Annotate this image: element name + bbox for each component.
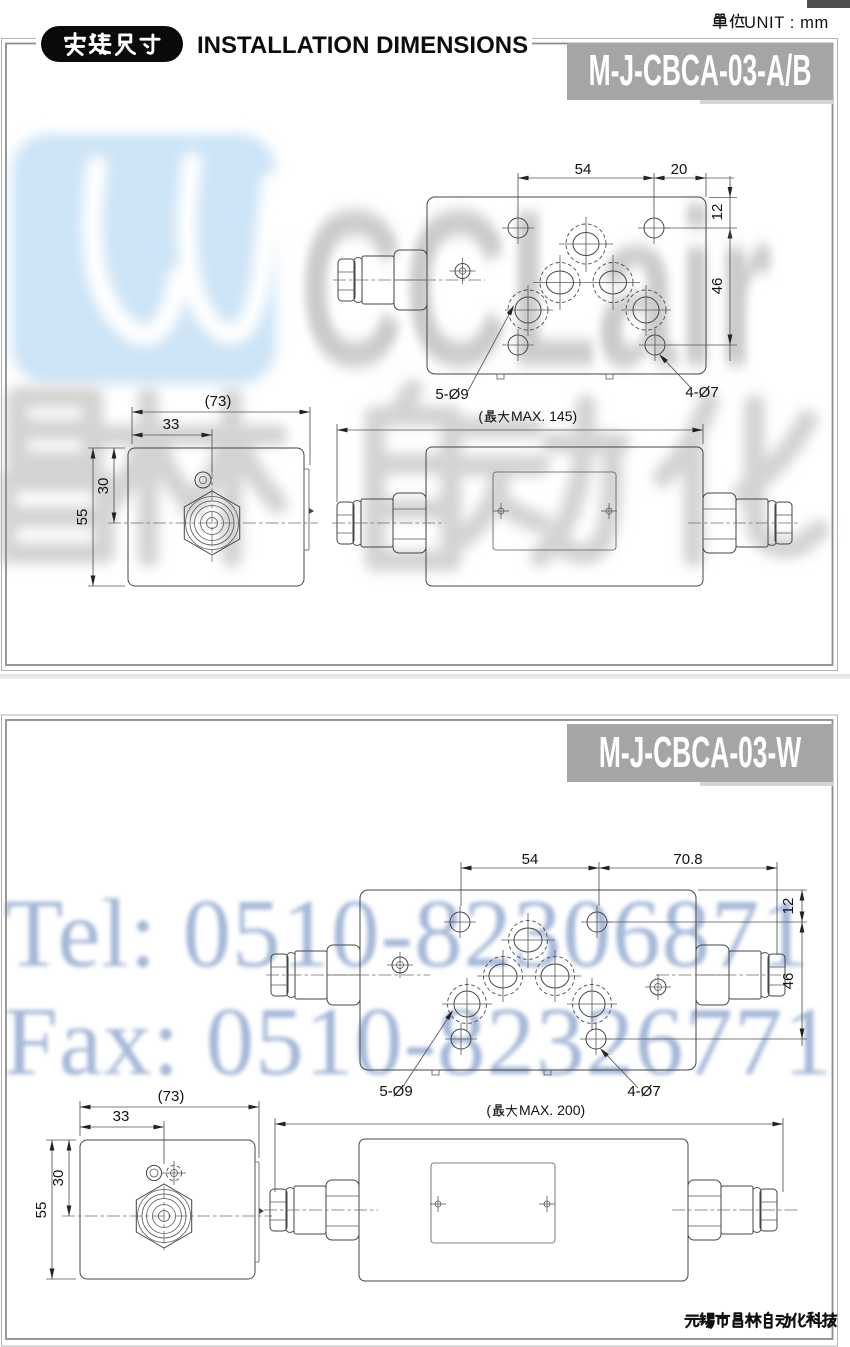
svg-text:(73): (73)	[205, 393, 232, 410]
svg-text:55: 55	[74, 509, 91, 526]
svg-text:30: 30	[50, 1170, 67, 1187]
svg-text:46: 46	[780, 973, 797, 990]
svg-text:M-J-CBCA-03-A/B: M-J-CBCA-03-A/B	[589, 45, 812, 95]
svg-text:4-Ø7: 4-Ø7	[685, 384, 718, 401]
svg-text:33: 33	[163, 416, 180, 433]
svg-text:(73): (73)	[158, 1088, 185, 1105]
svg-text:12: 12	[780, 898, 797, 915]
svg-text:5-Ø9: 5-Ø9	[435, 386, 468, 403]
svg-text:46: 46	[709, 278, 726, 295]
svg-text:5-Ø9: 5-Ø9	[379, 1083, 412, 1100]
svg-text:12: 12	[709, 204, 726, 221]
svg-text:33: 33	[113, 1108, 130, 1125]
svg-text:30: 30	[95, 478, 112, 495]
svg-text:55: 55	[33, 1202, 50, 1219]
svg-text:70.8: 70.8	[673, 851, 702, 868]
svg-text:UNIT : mm: UNIT : mm	[744, 14, 829, 32]
svg-text:MAX. 145): MAX. 145)	[511, 408, 577, 424]
svg-text:MAX. 200): MAX. 200)	[519, 1102, 585, 1118]
svg-text:M-J-CBCA-03-W: M-J-CBCA-03-W	[599, 727, 802, 777]
svg-text:4-Ø7: 4-Ø7	[627, 1083, 660, 1100]
svg-text:(: (	[478, 408, 483, 424]
svg-text:54: 54	[575, 161, 592, 178]
svg-text:(: (	[486, 1102, 491, 1118]
svg-text:54: 54	[522, 851, 539, 868]
svg-text:20: 20	[671, 161, 688, 178]
svg-text:INSTALLATION DIMENSIONS: INSTALLATION DIMENSIONS	[197, 32, 528, 59]
